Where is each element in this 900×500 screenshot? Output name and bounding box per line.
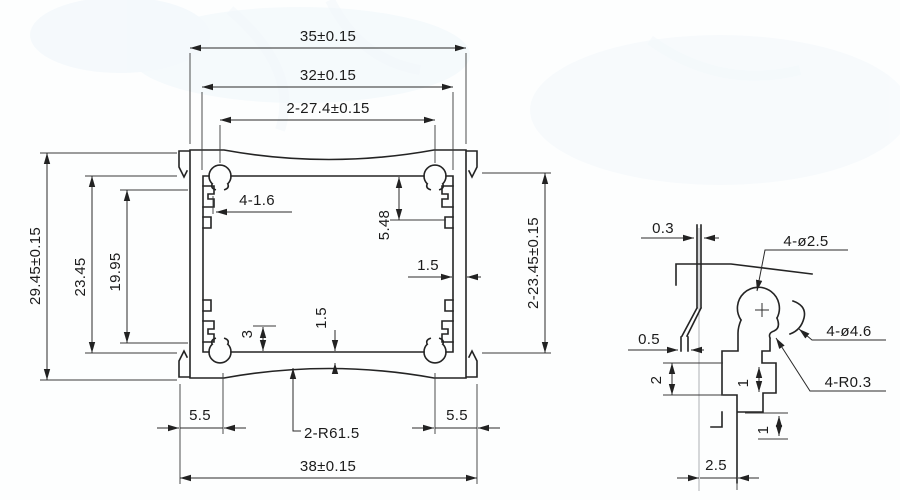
detail-profile-outline xyxy=(676,225,812,483)
engineering-drawing: 35±0.15 32±0.15 2-27.4±0.15 29.45±0.15 2… xyxy=(0,0,900,500)
det-label-0-5: 0.5 xyxy=(638,331,660,348)
det-label-4-dia-4-6: 4-ø4.6 xyxy=(826,323,871,340)
dim-label-5-5-left: 5.5 xyxy=(189,407,211,424)
dim-label-2-23-45: 2-23.45±0.15 xyxy=(525,217,542,309)
dim-label-29-45: 29.45±0.15 xyxy=(27,227,44,305)
det-label-4-dia-2-5: 4-ø2.5 xyxy=(783,233,828,250)
det-label-1-lower: 1 xyxy=(755,426,772,435)
det-label-2: 2 xyxy=(648,376,665,385)
dim-label-5-48: 5.48 xyxy=(376,210,393,240)
screw-boss-bottom-right xyxy=(424,338,446,363)
screw-boss-top-left xyxy=(209,165,231,190)
detail-dimension-labels: 0.3 0.5 2 1 1 2.5 4-ø2.5 4-ø4.6 4-R0.3 xyxy=(638,220,871,474)
dim-label-19-95: 19.95 xyxy=(107,252,124,291)
screw-boss-bottom-left xyxy=(209,338,231,363)
dim-label-32: 32±0.15 xyxy=(300,67,356,84)
leader-r61-5 xyxy=(293,368,301,431)
leader-4-dia-2-5 xyxy=(757,250,848,291)
dim-label-2-r61-5: 2-R61.5 xyxy=(304,425,359,442)
screw-boss-top-right xyxy=(424,165,446,190)
dim-label-4-1-6: 4-1.6 xyxy=(239,192,275,209)
dim-label-5-5-right: 5.5 xyxy=(446,407,468,424)
det-label-2-5: 2.5 xyxy=(705,457,727,474)
det-label-1-upper: 1 xyxy=(735,379,752,388)
detail-view: 0.3 0.5 2 1 1 2.5 4-ø2.5 4-ø4.6 4-R0.3 xyxy=(628,220,886,491)
watermark-blob xyxy=(30,0,210,73)
dim-label-1-5-bottom: 1.5 xyxy=(313,307,330,329)
dim-label-27-4: 2-27.4±0.15 xyxy=(286,100,369,117)
drawing-canvas: 35±0.15 32±0.15 2-27.4±0.15 29.45±0.15 2… xyxy=(0,0,900,500)
dim-label-38: 38±0.15 xyxy=(300,458,356,475)
dim-label-3: 3 xyxy=(239,330,256,339)
boss-center-cross xyxy=(755,303,769,317)
dim-label-23-45: 23.45 xyxy=(72,257,89,296)
dim-label-1-5-side: 1.5 xyxy=(417,257,439,274)
dim-label-35: 35±0.15 xyxy=(300,28,356,45)
det-label-4-r0-3: 4-R0.3 xyxy=(825,374,872,391)
watermark-blob xyxy=(530,35,900,185)
watermark xyxy=(30,0,900,185)
det-label-0-3: 0.3 xyxy=(652,220,674,237)
detail-dimensions xyxy=(628,238,886,478)
